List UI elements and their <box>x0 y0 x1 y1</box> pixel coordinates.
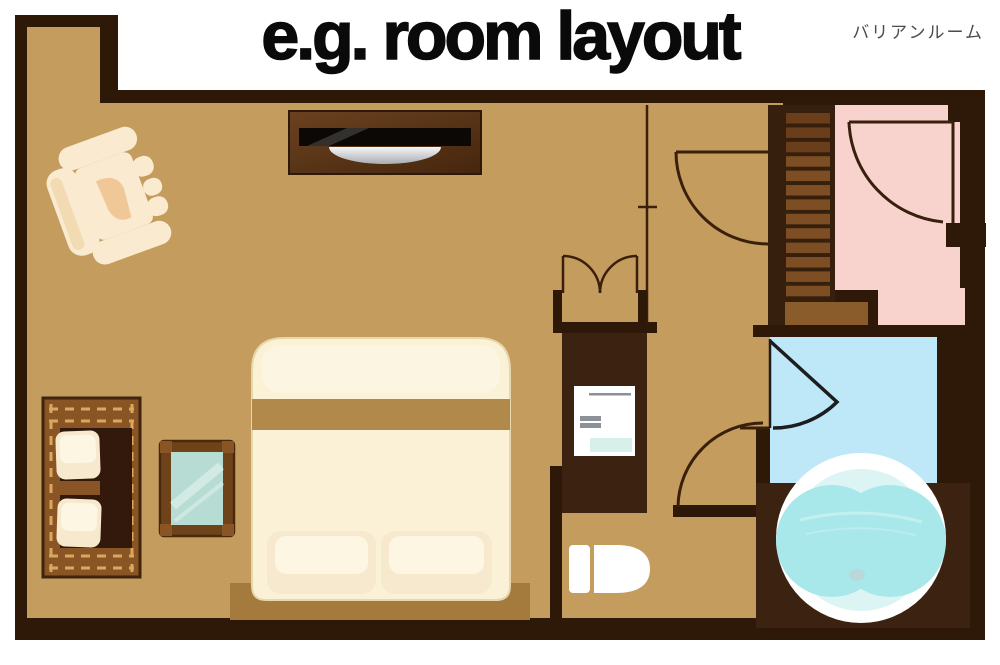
mirror-corner <box>160 524 172 536</box>
stair-step <box>786 243 830 254</box>
bed-runner-band <box>252 399 510 430</box>
vanity-towel-bar <box>580 416 601 421</box>
mirror-corner <box>160 441 172 453</box>
room-name-label: バリアンルーム <box>852 18 984 43</box>
stair-step <box>786 257 830 268</box>
bathtub-water <box>776 485 946 597</box>
stair-step <box>786 171 830 182</box>
vanity-counter-strip <box>590 438 632 452</box>
stair-step <box>786 127 830 137</box>
toilet-room-left-wall <box>550 466 562 618</box>
entry-floor <box>835 105 960 290</box>
floor-plan-drawing <box>0 0 1000 665</box>
vanity-alcove <box>562 333 647 513</box>
bathtub-water-right <box>834 485 946 597</box>
bathtub-drain <box>849 569 865 581</box>
washroom-bottom-wall <box>673 505 763 517</box>
shower-right-wall <box>937 337 970 483</box>
stair-landing-wall <box>835 288 873 302</box>
stair-step <box>786 156 830 167</box>
bed-sheet-sheen <box>262 345 500 393</box>
vanity-towel-bar <box>580 423 601 428</box>
sofa-cushion-top <box>55 430 101 480</box>
stair-step <box>786 185 830 196</box>
vanity-top-rail <box>589 393 631 396</box>
cushion-highlight <box>61 502 98 531</box>
shower-top-wall <box>753 325 970 337</box>
stair-landing <box>785 302 872 327</box>
toilet <box>569 545 650 593</box>
mirror-corner <box>222 524 234 536</box>
stair-step <box>786 228 830 239</box>
pillow-left-highlight <box>275 536 368 574</box>
wooden-bench-sofa <box>43 398 140 577</box>
tv-console <box>289 111 481 174</box>
pillow-right-highlight <box>389 536 484 574</box>
entry-floor-lower <box>878 288 965 327</box>
landing-side-wall <box>868 288 878 329</box>
toilet-bowl <box>594 545 650 593</box>
floor-plan-canvas: e.g. room layout バリアンルーム <box>0 0 1000 665</box>
stair-step <box>786 271 830 282</box>
double-bed <box>230 338 530 620</box>
stair-step <box>786 199 830 210</box>
stair-step <box>786 214 830 225</box>
stair-step <box>786 142 830 153</box>
entry-door-jamb-top <box>948 103 962 122</box>
stair-step <box>786 113 830 124</box>
stair-step <box>786 286 830 297</box>
closet-jamb-left <box>553 290 562 323</box>
mirror <box>160 441 234 536</box>
toilet-tank <box>569 545 590 593</box>
cushion-highlight <box>59 434 96 463</box>
entry-door-jamb-bottom <box>946 223 986 247</box>
closet-back-wall <box>553 322 657 333</box>
sofa-cushion-bottom <box>56 498 102 548</box>
mirror-corner <box>222 441 234 453</box>
page-title: e.g. room layout <box>0 0 1000 72</box>
closet-jamb-right <box>638 290 647 323</box>
sofa-divider <box>60 481 100 495</box>
